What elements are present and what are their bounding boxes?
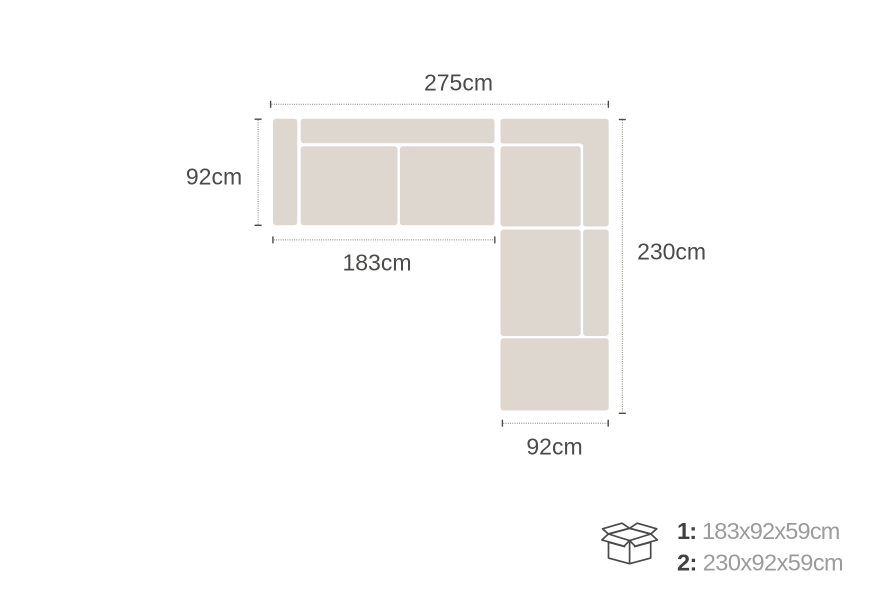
svg-text:92cm: 92cm — [186, 164, 242, 190]
svg-text:183cm: 183cm — [342, 250, 411, 276]
svg-text:230cm: 230cm — [637, 239, 706, 265]
svg-text:92cm: 92cm — [526, 434, 582, 460]
svg-text:2: 230x92x59cm: 2: 230x92x59cm — [677, 550, 843, 576]
svg-text:275cm: 275cm — [424, 70, 493, 96]
svg-text:1: 183x92x59cm: 1: 183x92x59cm — [677, 518, 840, 544]
